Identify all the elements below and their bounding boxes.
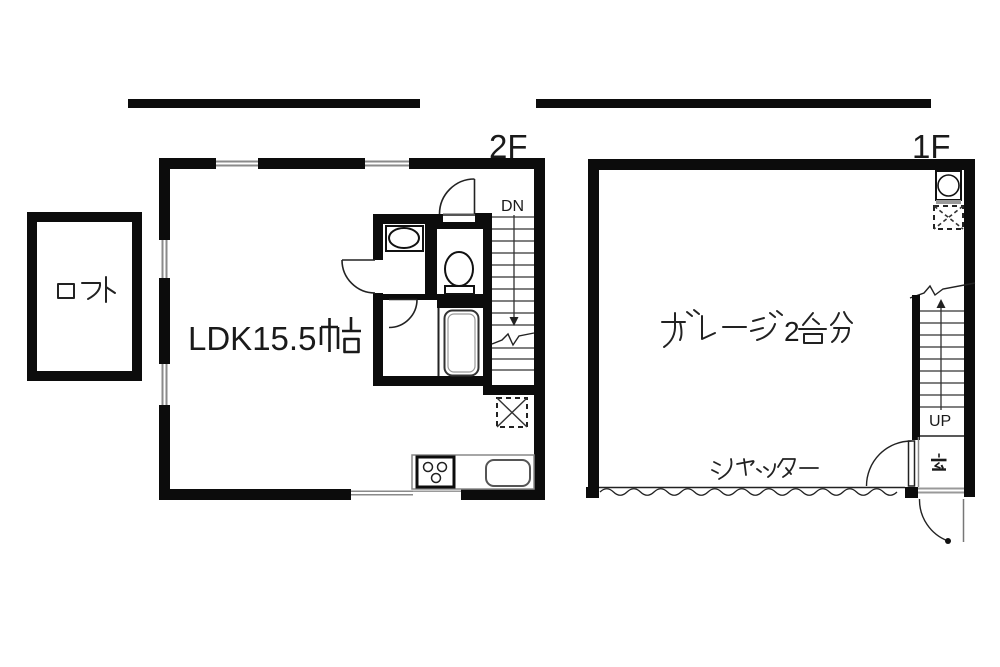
svg-text:DN: DN — [501, 198, 524, 215]
svg-text:UP: UP — [929, 413, 951, 430]
svg-text:LDK15.5: LDK15.5 — [188, 320, 316, 357]
svg-text:2: 2 — [784, 316, 800, 347]
